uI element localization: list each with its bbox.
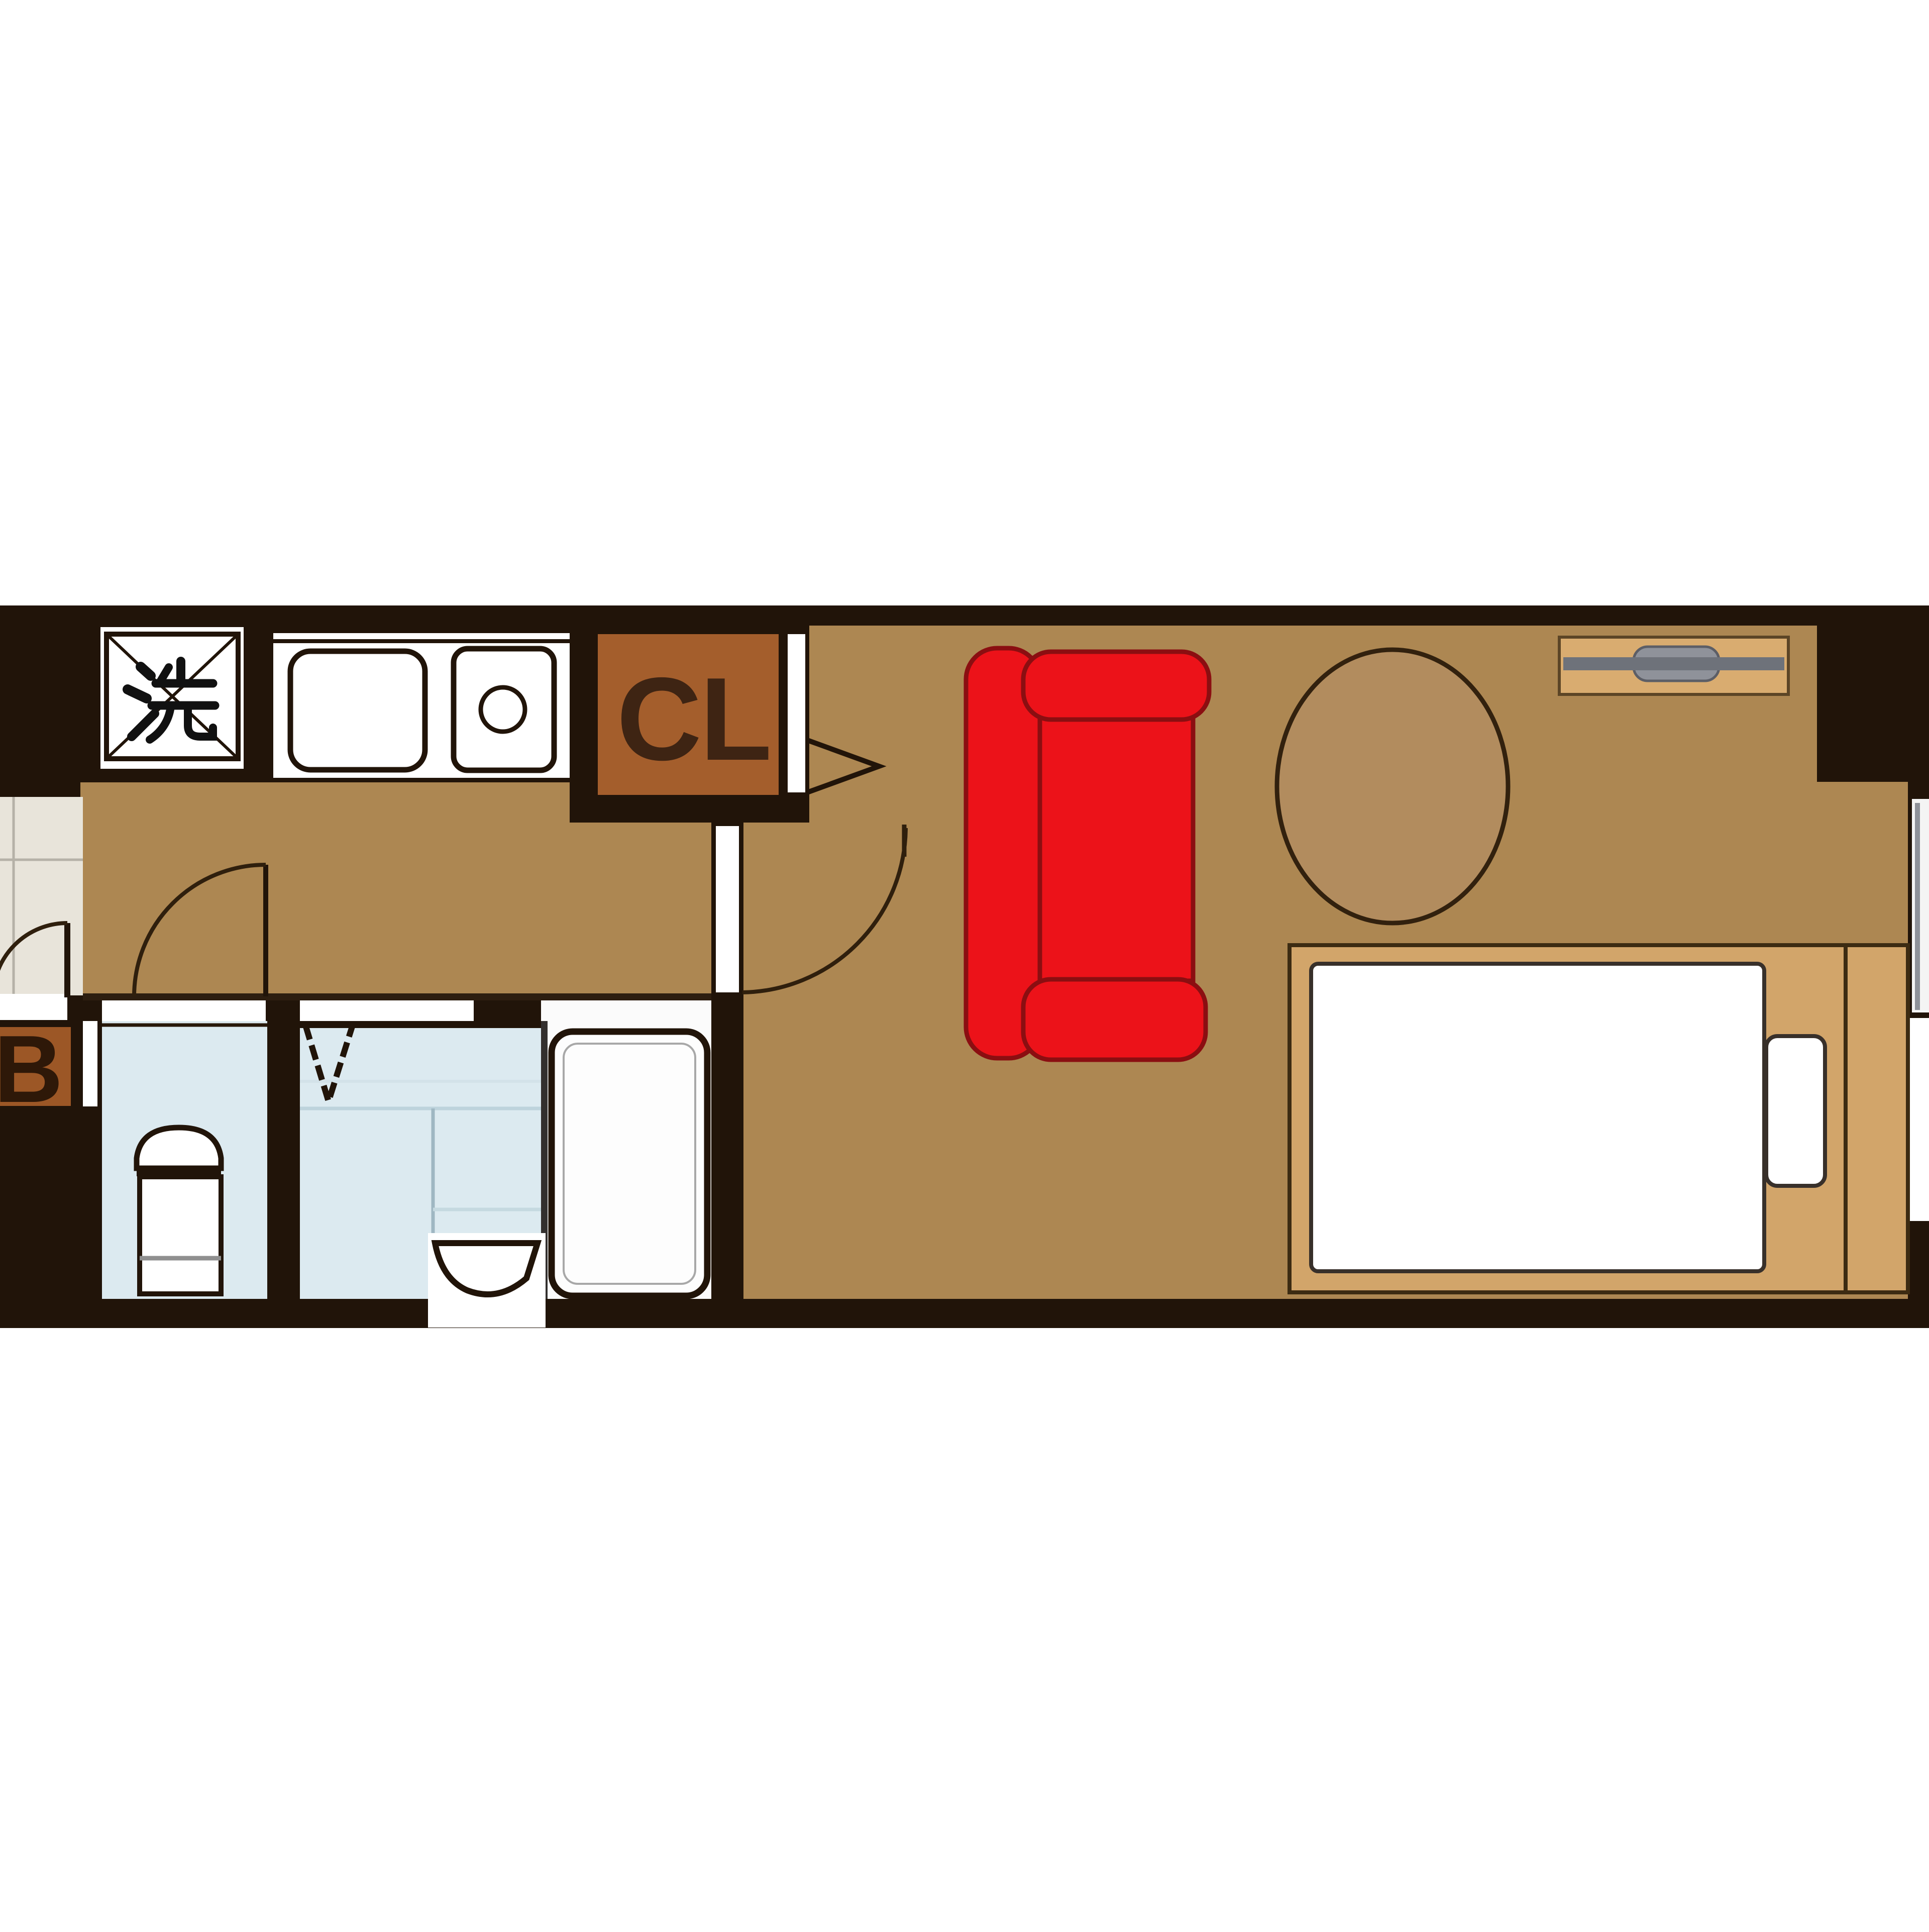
svg-text:B: B (0, 1016, 63, 1123)
svg-text:CL: CL (616, 653, 770, 785)
